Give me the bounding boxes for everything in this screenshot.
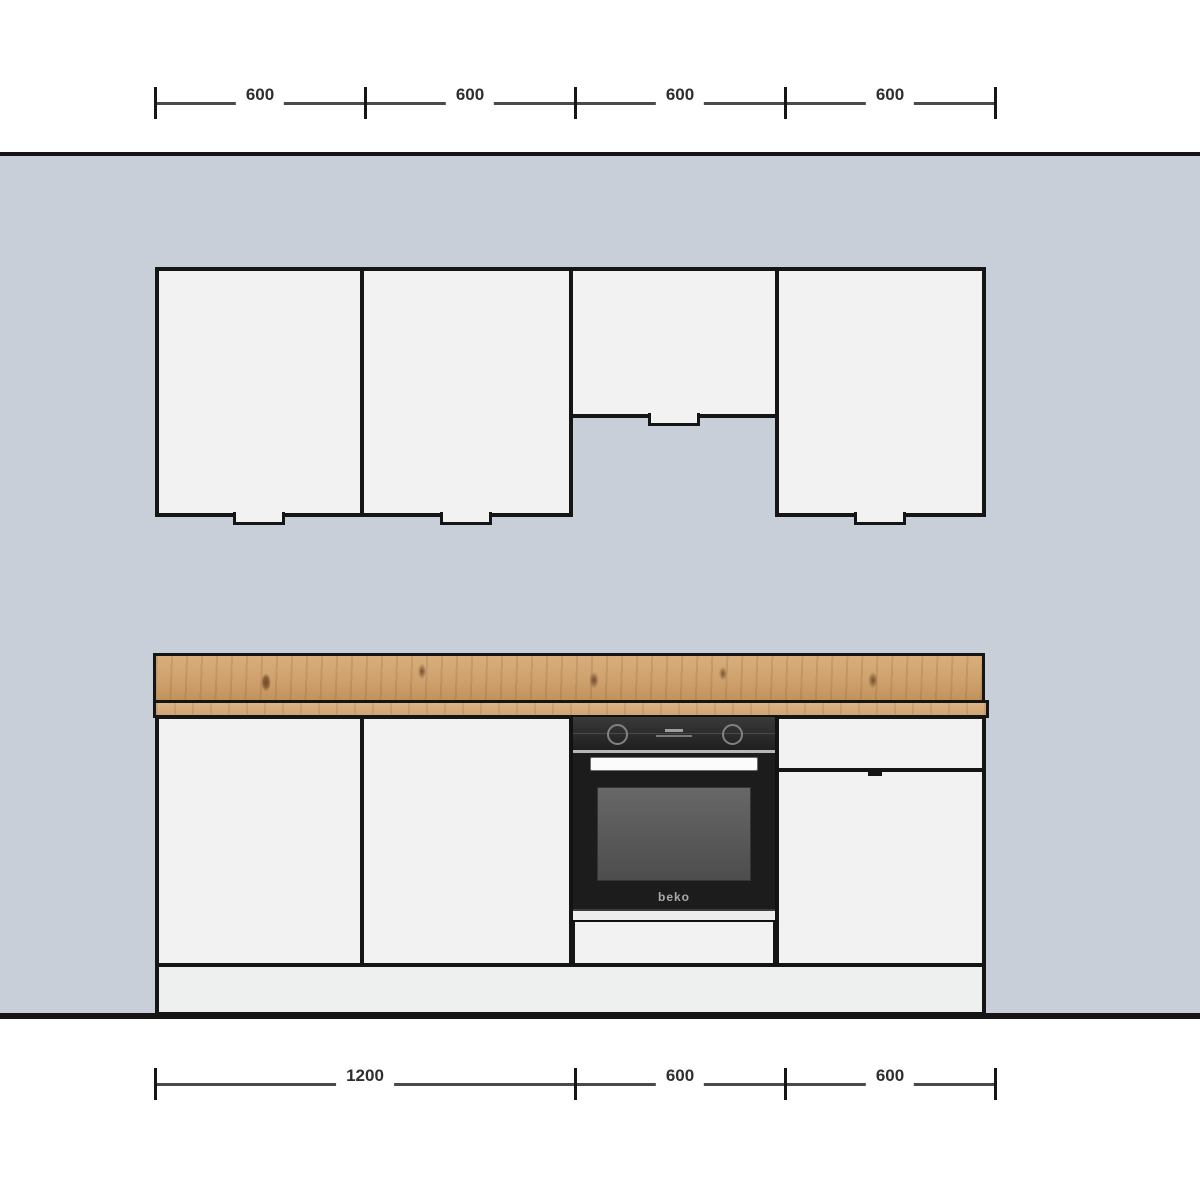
- upper-cabinet-3-short[interactable]: [569, 267, 779, 418]
- upper-cabinet-1[interactable]: [155, 267, 364, 517]
- dim-tick: [154, 1068, 157, 1100]
- oven-display-line-1: [665, 729, 683, 732]
- upper-cabinet-2-handle-notch: [440, 512, 492, 525]
- dim-tick: [784, 1068, 787, 1100]
- plinth[interactable]: [155, 963, 986, 1016]
- floor-line: [0, 1013, 1200, 1019]
- dim-label-bottom-3: 600: [866, 1063, 914, 1089]
- oven-knob-right-icon[interactable]: [722, 724, 743, 745]
- dim-label-top-1: 600: [236, 82, 284, 108]
- oven-door-handle[interactable]: [590, 757, 758, 771]
- oven-control-panel: [573, 717, 775, 750]
- dim-label-bottom-1: 1200: [336, 1063, 394, 1089]
- oven-lower-drawer-front[interactable]: [571, 918, 777, 967]
- dim-label-bottom-2: 600: [656, 1063, 704, 1089]
- backsplash-wood-panel[interactable]: [153, 653, 985, 703]
- upper-cabinet-3-handle-notch: [648, 413, 700, 426]
- oven-brand-label: beko: [573, 890, 775, 904]
- oven-panel-separator: [573, 750, 775, 753]
- dim-tick: [574, 87, 577, 119]
- upper-cabinet-4-handle-notch: [854, 512, 906, 525]
- dim-label-top-4: 600: [866, 82, 914, 108]
- dim-tick: [994, 1068, 997, 1100]
- built-in-oven[interactable]: beko: [571, 715, 777, 922]
- oven-display-line-2: [656, 735, 692, 737]
- base-right-drawer-front[interactable]: [775, 715, 986, 772]
- dim-tick: [574, 1068, 577, 1100]
- upper-cabinet-4[interactable]: [775, 267, 986, 517]
- dim-label-top-3: 600: [656, 82, 704, 108]
- oven-door[interactable]: beko: [573, 771, 775, 909]
- dim-tick: [364, 87, 367, 119]
- base-door-2[interactable]: [360, 715, 573, 967]
- base-right-door-handle-notch: [868, 771, 882, 776]
- oven-bottom-trim: [573, 909, 775, 920]
- oven-display: [651, 726, 697, 740]
- dim-tick: [784, 87, 787, 119]
- upper-cabinet-1-handle-notch: [233, 512, 285, 525]
- dim-tick: [154, 87, 157, 119]
- dim-tick: [994, 87, 997, 119]
- dim-label-top-2: 600: [446, 82, 494, 108]
- oven-knob-left-icon[interactable]: [607, 724, 628, 745]
- base-door-1[interactable]: [155, 715, 364, 967]
- oven-door-window: [597, 787, 751, 881]
- upper-cabinet-2[interactable]: [360, 267, 573, 517]
- base-right-door[interactable]: [775, 768, 986, 967]
